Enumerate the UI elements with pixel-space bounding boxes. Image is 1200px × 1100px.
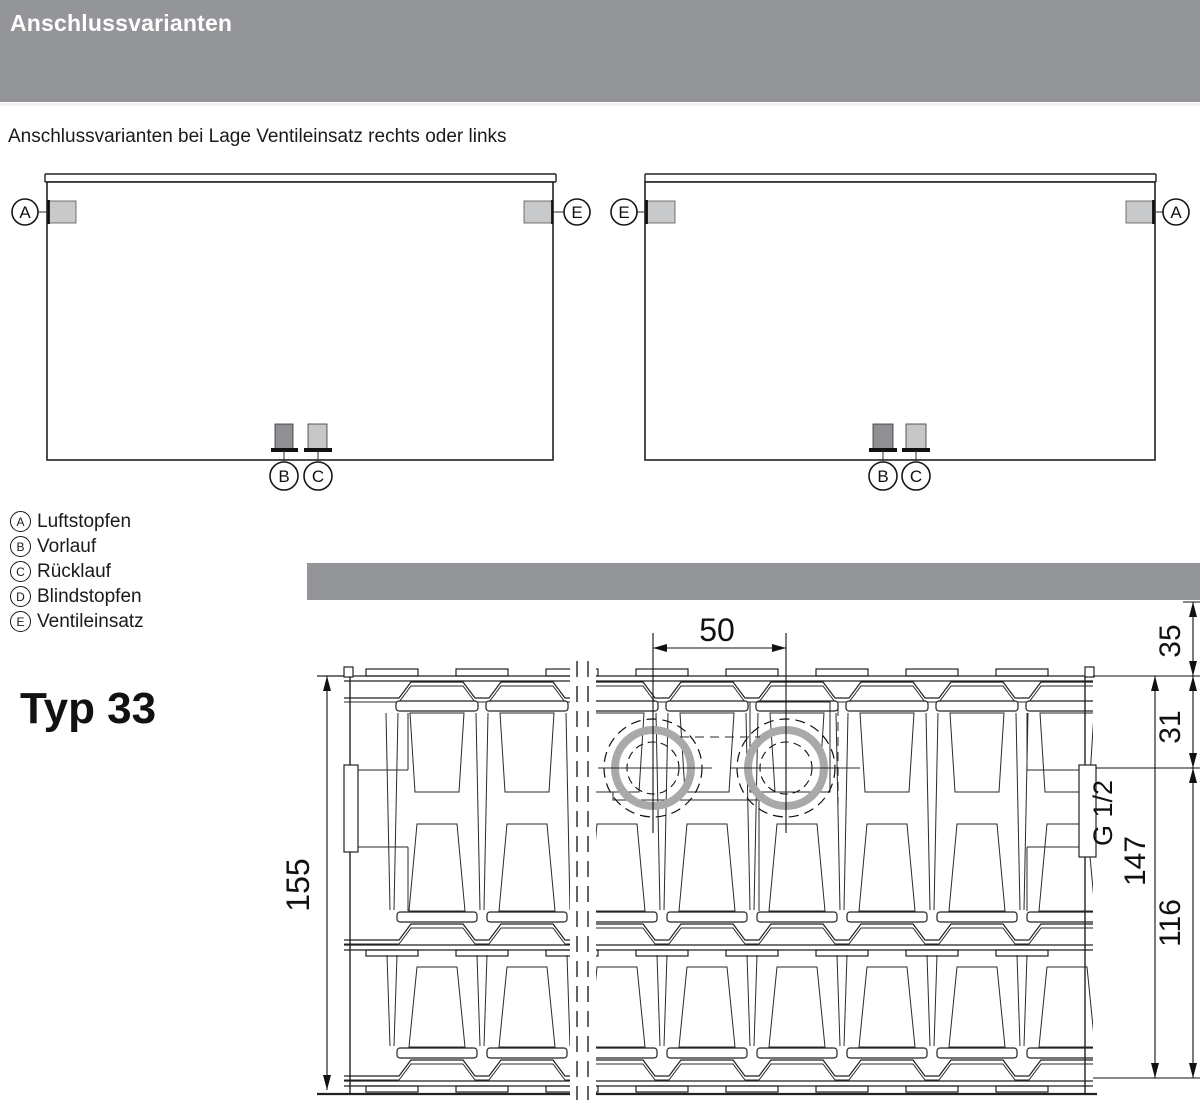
dim-147: 147: [1119, 836, 1152, 886]
plug-top-left: E: [611, 199, 675, 225]
callout-letter: B: [278, 467, 289, 486]
callout-letter: E: [571, 203, 582, 222]
legend-item-a: A Luftstopfen: [10, 509, 144, 534]
legend-key-circle: A: [10, 511, 31, 532]
plug-top-left: A: [12, 199, 76, 225]
lower-channels: [409, 967, 1095, 1047]
plug-top-right: A: [1126, 199, 1189, 225]
dim-155: 155: [280, 858, 316, 911]
bottom-caps: [397, 1048, 1107, 1058]
dim-thread: G 1/2: [1088, 780, 1118, 846]
radiator-section: [344, 669, 1108, 1092]
legend-key-circle: B: [10, 536, 31, 557]
radiator-edges: [344, 667, 1096, 1094]
middle-bumps: [366, 950, 1048, 956]
top-grille-bumps: [366, 669, 1048, 676]
technical-drawing: 50 155 35 31 116 147 G 1/2: [0, 555, 1200, 1100]
break-gap: [570, 661, 596, 1100]
radiator-outline-right: [645, 174, 1156, 460]
callout-letter: B: [877, 467, 888, 486]
side-boss-left: [344, 765, 358, 852]
callout-letter: C: [312, 467, 324, 486]
callout-letter: C: [910, 467, 922, 486]
bottom-bumps: [366, 1086, 1048, 1092]
wall-bar: [307, 563, 1200, 600]
header-divider: [0, 103, 1200, 106]
legend-label: Luftstopfen: [37, 511, 131, 533]
dim-35: 35: [1154, 624, 1187, 657]
callout-letter: A: [1170, 203, 1182, 222]
upper-fins: [386, 713, 1028, 910]
dim-50: 50: [699, 612, 735, 648]
diagram-left: A E B C: [0, 160, 600, 505]
header-bar: Anschlussvarianten: [0, 0, 1200, 102]
diagram-right: E A B C: [600, 160, 1200, 505]
dim-31: 31: [1154, 710, 1187, 743]
middle-caps: [397, 912, 1107, 922]
radiator-outline-left: [45, 174, 556, 460]
mid-channels: [409, 824, 1095, 911]
dim-116: 116: [1154, 899, 1187, 947]
subtitle: Anschlussvarianten bei Lage Ventileinsat…: [8, 126, 507, 148]
lower-fins: [387, 955, 1027, 1046]
plug-top-right: E: [524, 199, 590, 225]
callout-letter: A: [19, 203, 31, 222]
tapping-left: [598, 719, 712, 817]
callout-letter: E: [618, 203, 629, 222]
page-title: Anschlussvarianten: [0, 0, 1200, 37]
